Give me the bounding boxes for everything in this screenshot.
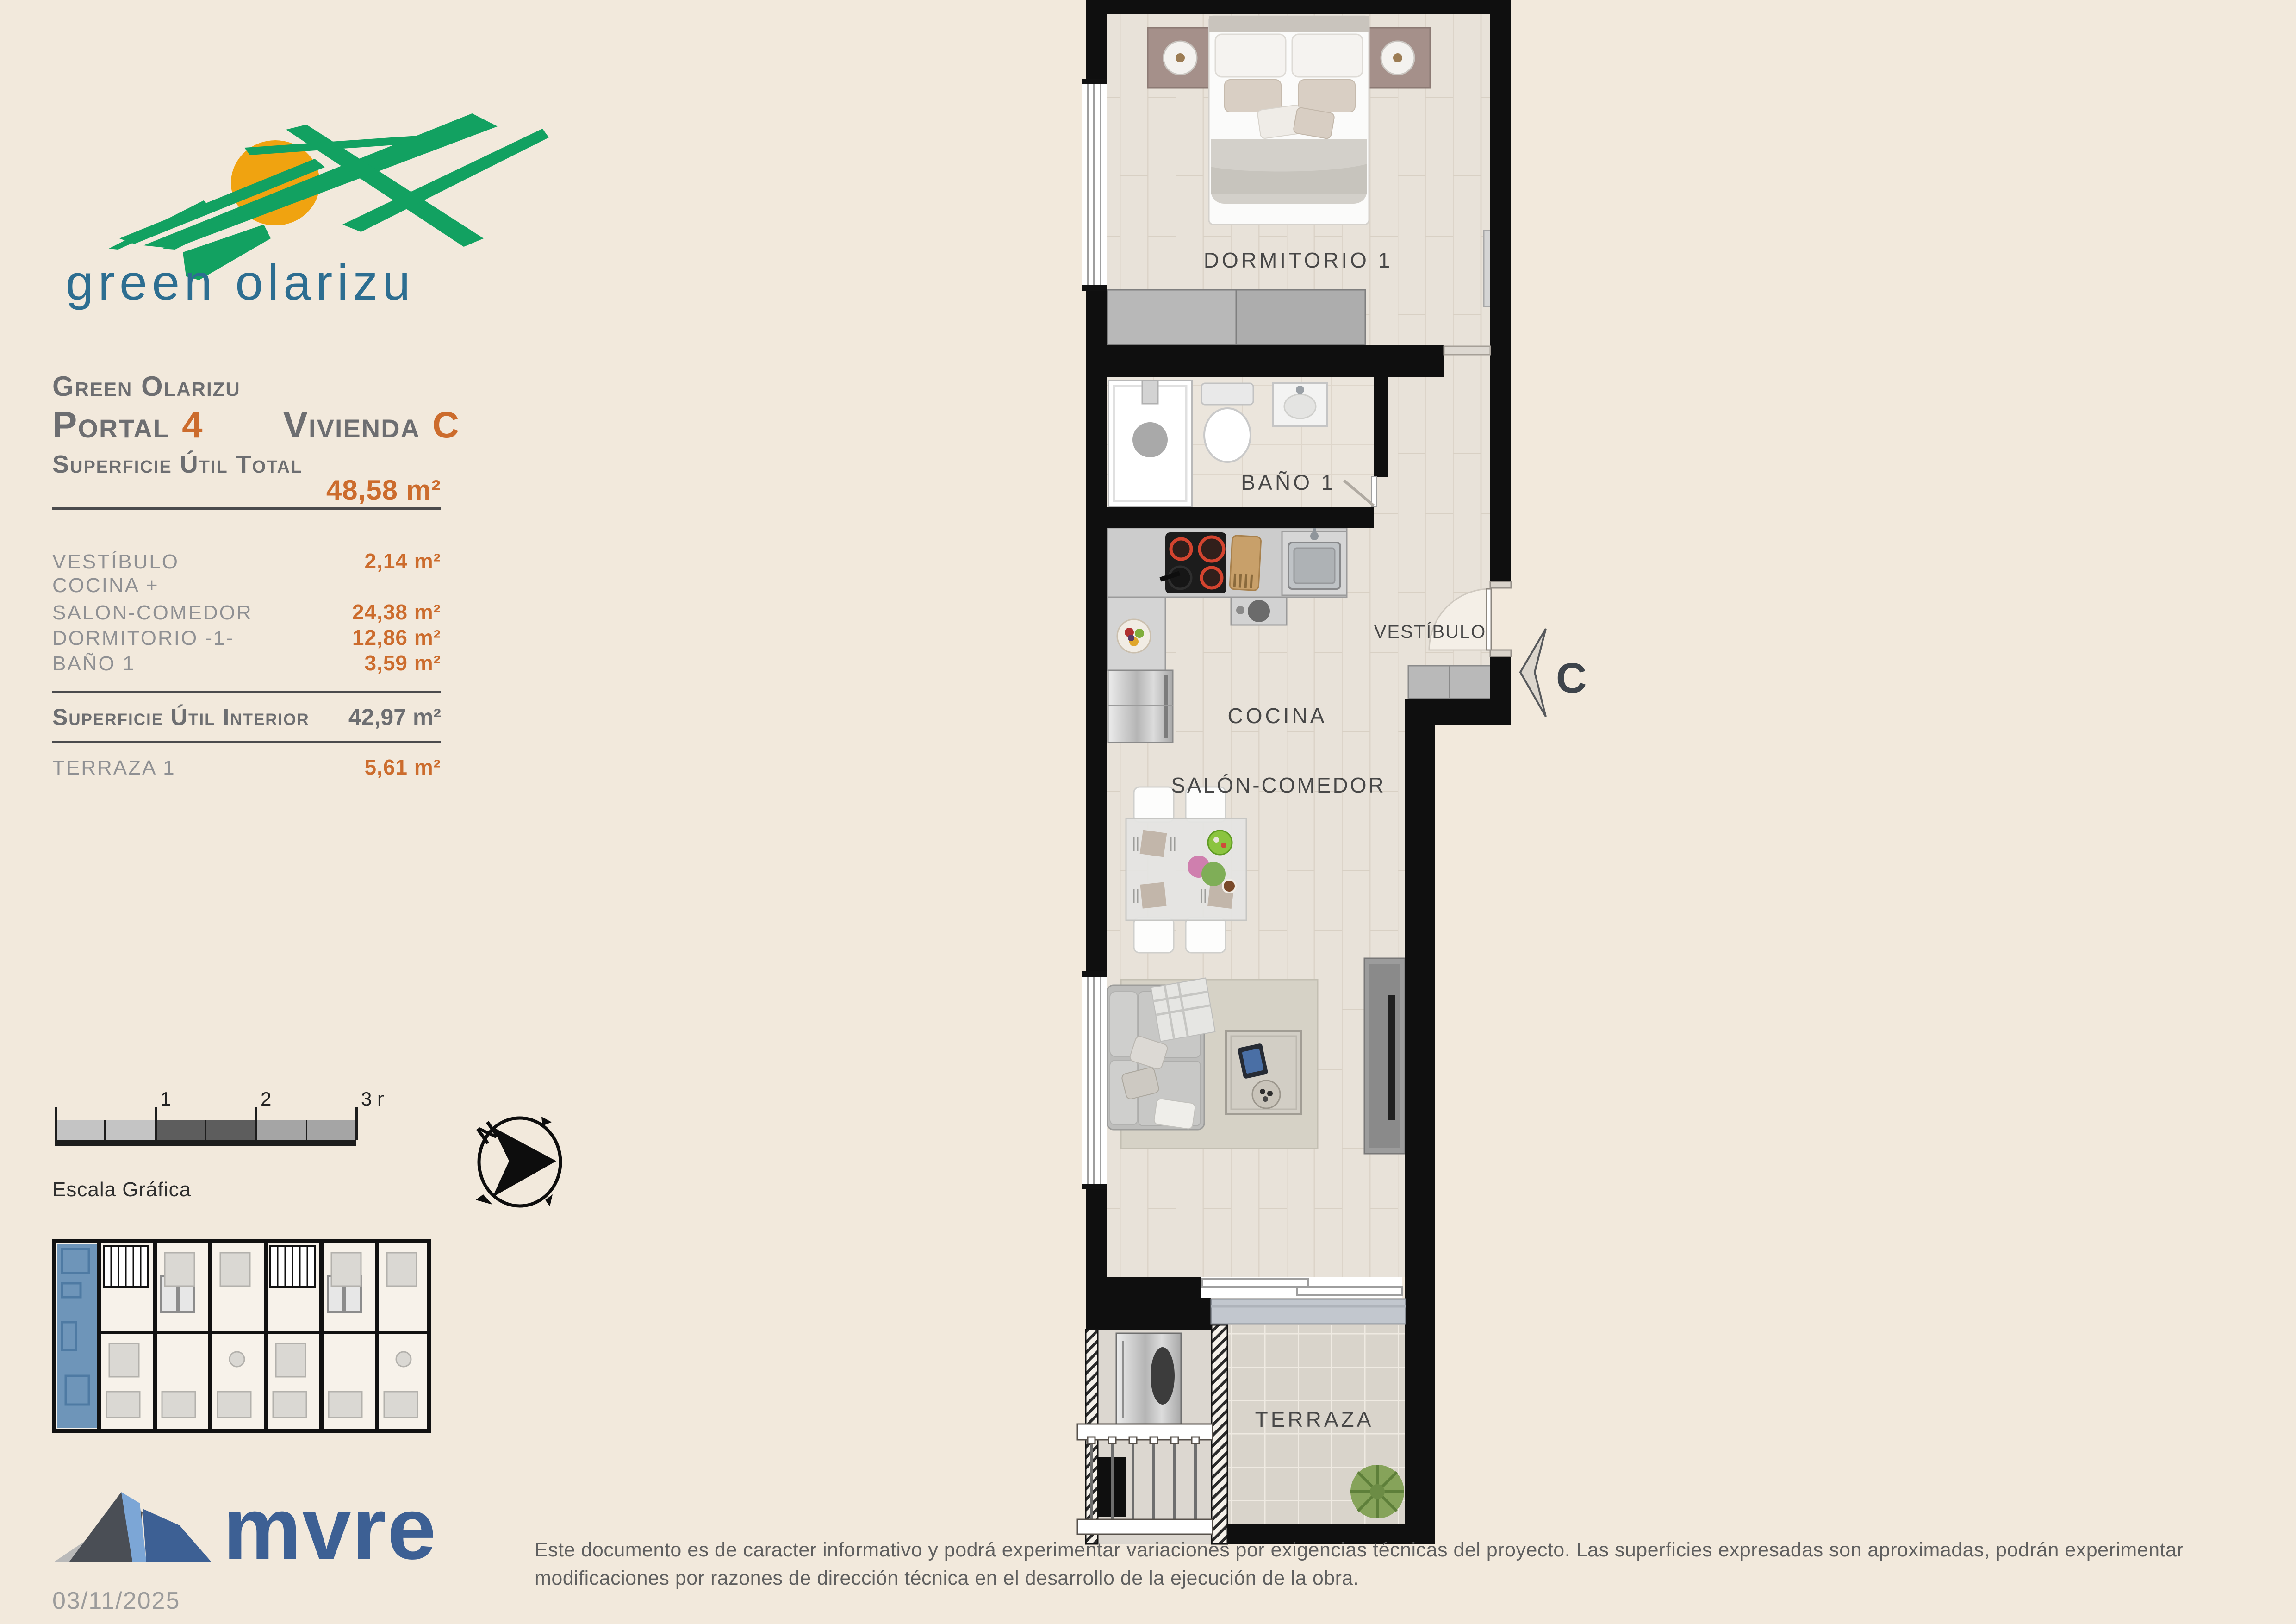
date: 03/11/2025	[52, 1587, 180, 1615]
vivienda-letter: C	[432, 404, 460, 446]
cooktop	[1160, 532, 1226, 593]
bedroom-window	[1082, 79, 1107, 291]
label-hall: VESTÍBULO	[1374, 621, 1487, 642]
key-plan-highlight-unit	[57, 1244, 97, 1428]
vivienda-label: Vivienda	[283, 404, 421, 446]
wardrobe-door	[1107, 290, 1236, 345]
portal-label: Portal	[52, 404, 170, 446]
svg-text:3 m.: 3 m.	[361, 1088, 384, 1110]
entrance-door-frame	[1490, 581, 1511, 656]
total-area-value: 48,58 m²	[52, 474, 441, 506]
bathroom-sink	[1273, 383, 1327, 426]
bedroom-sliding-door	[1444, 346, 1490, 355]
cutting-board	[1230, 536, 1261, 591]
north-compass-icon: N	[471, 1112, 568, 1212]
label-terrace: TERRAZA	[1255, 1407, 1374, 1431]
nightstand	[1365, 28, 1430, 88]
sideboard	[1408, 666, 1491, 699]
svg-text:N: N	[472, 1115, 504, 1150]
key-plan	[52, 1239, 431, 1433]
interior-area-row: Superficie Útil Interior 42,97 m²	[52, 704, 441, 731]
floorplan-sheet: green olarizu Green Olarizu Portal 4 Viv…	[0, 0, 2296, 1624]
area-row: VESTÍBULO 2,14 m²	[52, 549, 441, 574]
area-row: SALON-COMEDOR 24,38 m²	[52, 600, 441, 625]
unit-identifier: Portal 4 Vivienda C	[52, 404, 460, 446]
terrace-area-row: TERRAZA 1 5,61 m²	[52, 755, 441, 780]
entrance-door-leaf	[1487, 589, 1491, 650]
shower-tray	[1108, 381, 1192, 506]
scale-bar: 1 2 3 m.	[51, 1088, 384, 1171]
label-bathroom: BAÑO 1	[1241, 470, 1336, 494]
dining-table	[1126, 818, 1246, 920]
area-row: BAÑO 1 3,59 m²	[52, 650, 441, 675]
mvre-mountain-blue	[143, 1509, 211, 1562]
terrace-lintel	[1211, 1299, 1406, 1324]
divider	[52, 741, 441, 743]
project-title: Green Olarizu	[52, 370, 241, 402]
coffee-table	[1226, 1031, 1301, 1114]
tv-unit	[1364, 958, 1405, 1154]
svg-text:2: 2	[261, 1088, 271, 1110]
nightstand	[1148, 28, 1213, 88]
tv	[1388, 995, 1395, 1120]
area-row: COCINA +	[52, 574, 441, 597]
disclaimer-text: Este documento es de caracter informativ…	[535, 1536, 2284, 1593]
main-floor-plan: C DORMITORIO 1 BAÑO 1 VESTÍBULO COCINA S…	[1064, 0, 1643, 1551]
brand-wordmark: green olarizu	[66, 254, 415, 310]
terrace-sliding-door	[1201, 1277, 1402, 1298]
label-kitchen: COCINA	[1228, 704, 1327, 728]
fridge	[1108, 670, 1173, 743]
water-heater	[1116, 1333, 1181, 1424]
green-olarizu-logo: green olarizu	[65, 86, 551, 326]
divider	[52, 691, 441, 693]
oven-vent	[1231, 597, 1287, 625]
terrace-wall-hatch	[1212, 1325, 1227, 1544]
mvre-wordmark: mvre	[223, 1480, 437, 1572]
label-living: SALÓN-COMEDOR	[1171, 773, 1385, 797]
label-bedroom: DORMITORIO 1	[1204, 248, 1393, 272]
entrance-arrow-icon	[1520, 629, 1546, 717]
living-window	[1082, 971, 1107, 1189]
sofa	[1107, 978, 1215, 1130]
double-bed	[1209, 16, 1369, 225]
portal-number: 4	[182, 404, 204, 446]
svg-text:1: 1	[160, 1088, 171, 1110]
scale-caption: Escala Gráfica	[52, 1178, 191, 1201]
toilet	[1201, 383, 1253, 462]
area-row: DORMITORIO -1- 12,86 m²	[52, 625, 441, 650]
fruit-bowl	[1117, 619, 1151, 653]
entrance-letter: C	[1556, 655, 1587, 702]
divider	[52, 507, 441, 510]
kitchen-sink	[1282, 522, 1347, 595]
mvre-logo: mvre	[51, 1479, 467, 1572]
plant	[1350, 1465, 1404, 1518]
